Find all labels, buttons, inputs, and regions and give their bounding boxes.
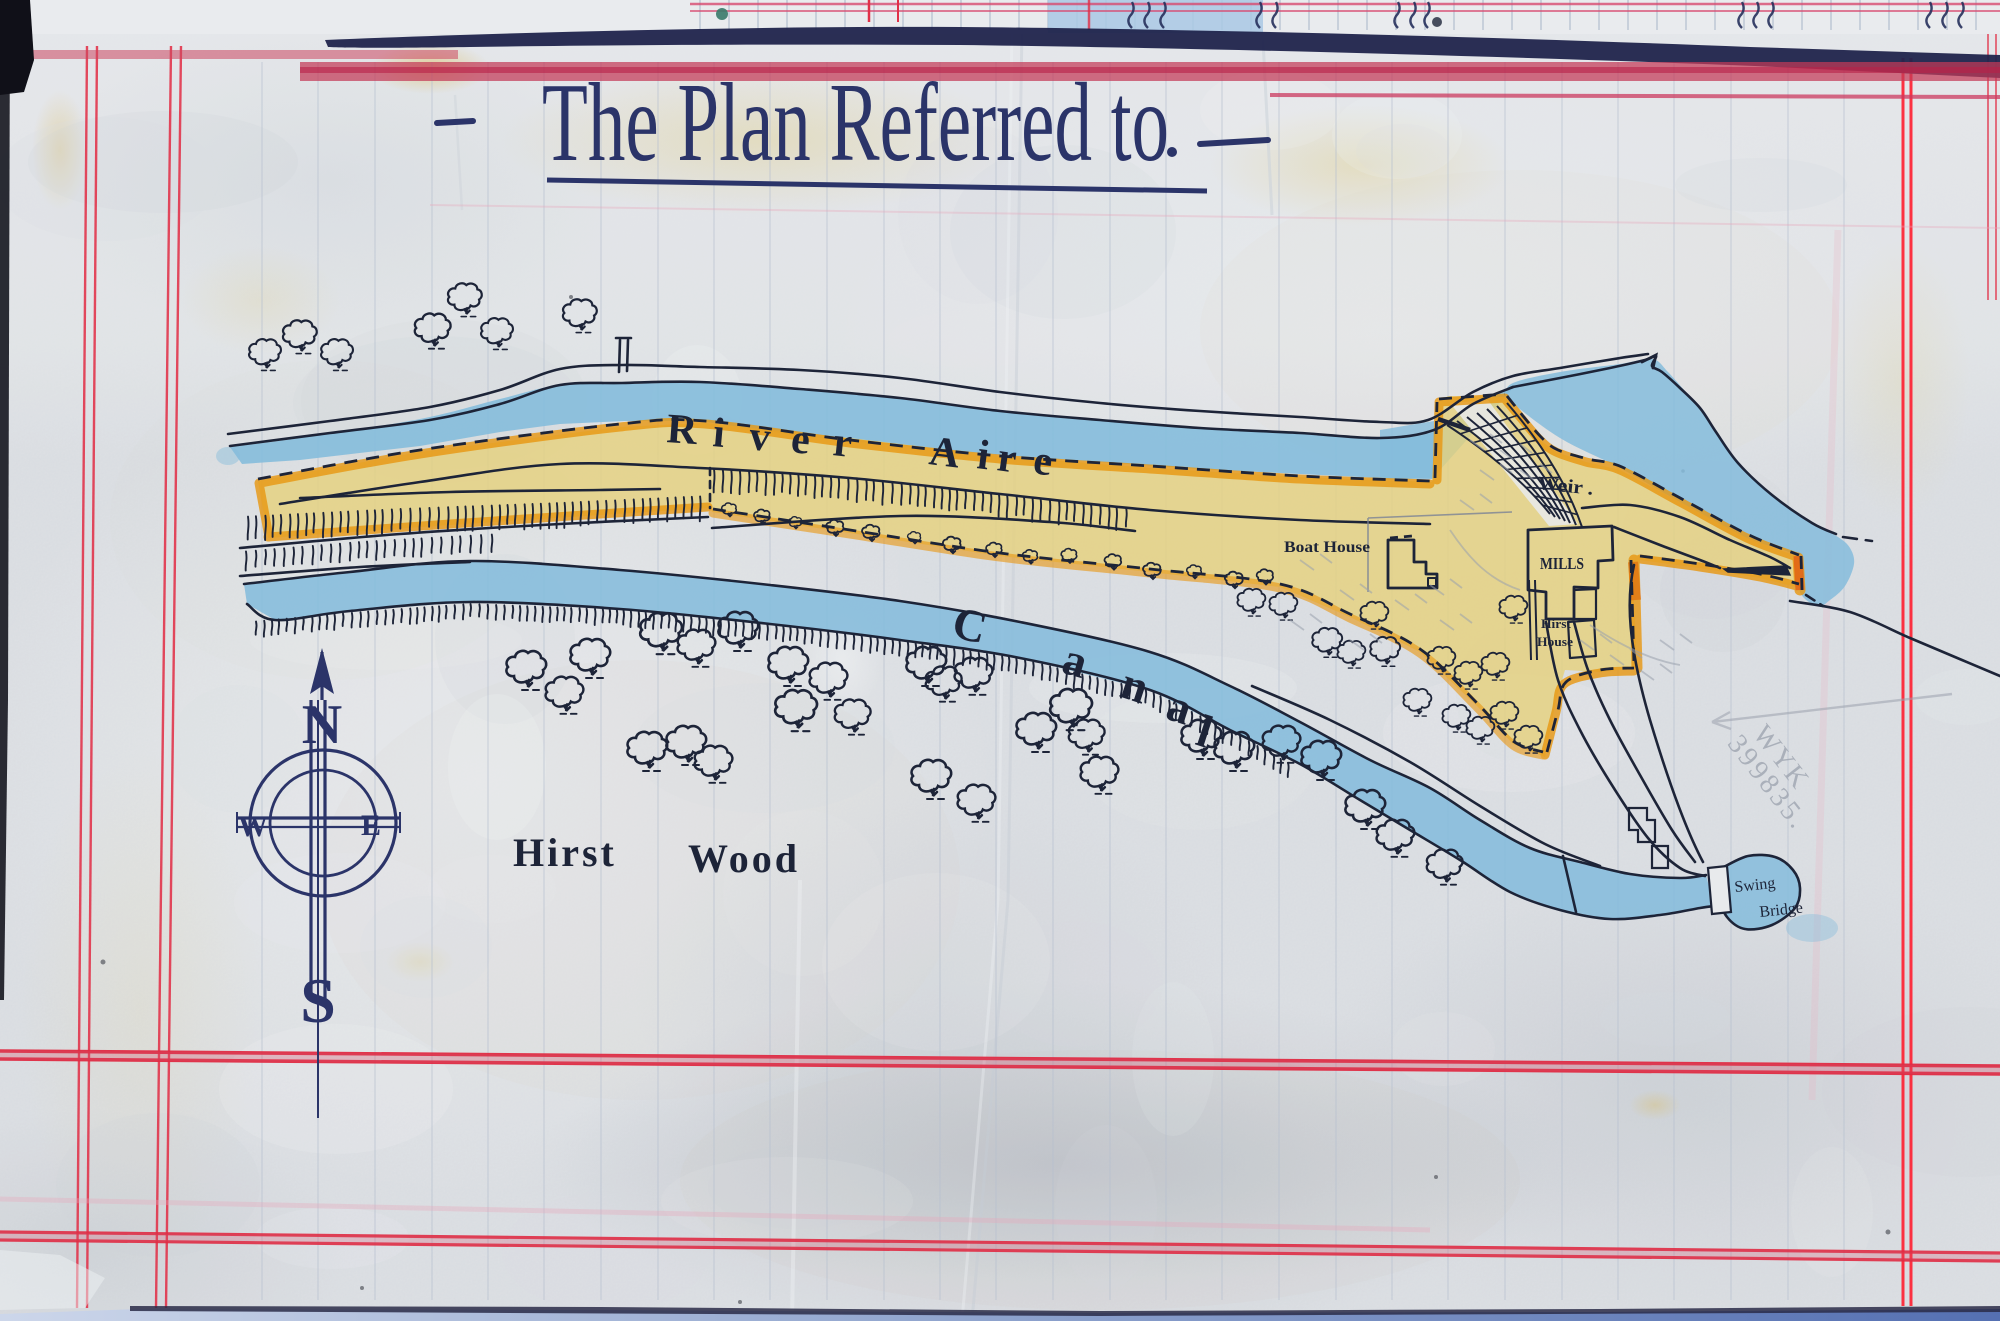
svg-text:W: W bbox=[238, 810, 268, 843]
svg-text:Hirst: Hirst bbox=[1541, 616, 1572, 631]
svg-text:Boat House: Boat House bbox=[1284, 539, 1370, 556]
svg-text:N: N bbox=[302, 694, 342, 756]
svg-text:House: House bbox=[1537, 634, 1573, 649]
svg-text:Hirst: Hirst bbox=[513, 830, 617, 875]
svg-text:MILLS: MILLS bbox=[1540, 554, 1584, 573]
svg-text:E: E bbox=[361, 809, 381, 842]
svg-text:R: R bbox=[665, 406, 699, 454]
svg-text:S: S bbox=[300, 965, 336, 1036]
svg-text:A: A bbox=[927, 428, 963, 477]
svg-text:Wood: Wood bbox=[688, 836, 800, 881]
